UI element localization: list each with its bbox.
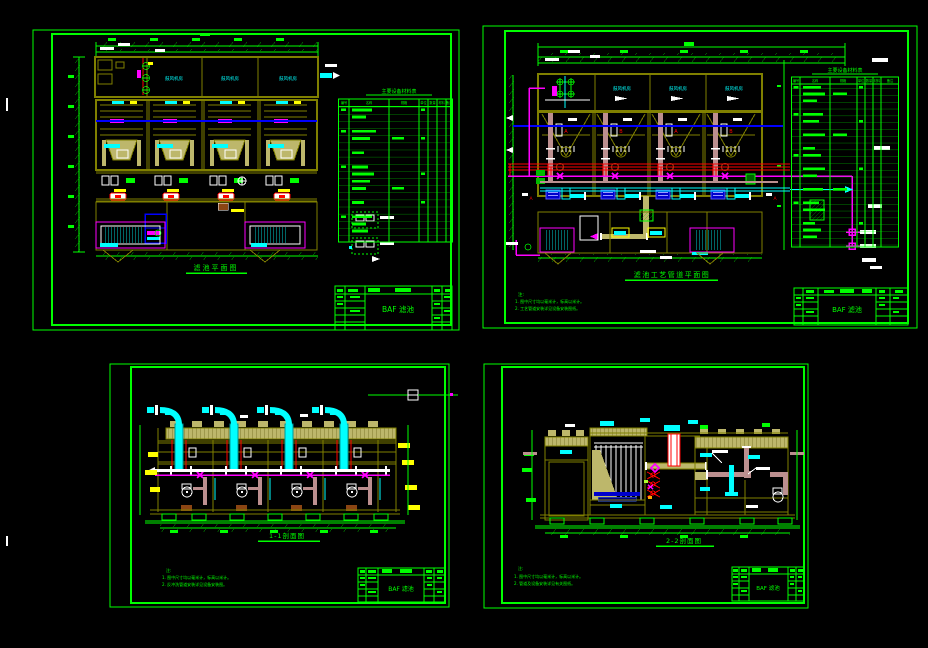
svg-text:名称: 名称 bbox=[366, 100, 373, 105]
svg-text:编号: 编号 bbox=[793, 78, 799, 83]
svg-text:规格: 规格 bbox=[840, 78, 847, 83]
svg-text:名称: 名称 bbox=[812, 78, 819, 83]
section-marker-right: A bbox=[773, 196, 777, 202]
section-structure bbox=[147, 405, 396, 512]
notes-header: 注: bbox=[166, 567, 171, 573]
sheet-pipe-plan: 鼓风机房 鼓风机房 鼓风机房 A B A B bbox=[483, 26, 917, 328]
right-structure bbox=[695, 429, 804, 515]
equipment-table: 主要设备材料表 编号 名称 规格 单位 数量 材料 备注 bbox=[339, 88, 453, 242]
room-label-2: 鼓风机房 bbox=[669, 85, 687, 92]
filter-cells bbox=[96, 100, 317, 200]
notes-header: 注: bbox=[518, 565, 523, 571]
table-title: 主要设备材料表 bbox=[381, 88, 416, 95]
title-block-title: BAF 滤池 bbox=[832, 305, 862, 314]
sheet-frame bbox=[110, 364, 449, 607]
title-block: BAF 滤池 bbox=[794, 288, 908, 325]
svg-text:规格: 规格 bbox=[401, 100, 408, 105]
notes: 注: 1. 图中尺寸均以毫米计，标高以米计。 2. 工艺管道安装详见设备安装图纸… bbox=[515, 291, 584, 311]
notes-header: 注: bbox=[518, 291, 524, 298]
sheet-section-2: 2-2剖面图 注: 1. 图中尺寸均以毫米计，标高以米计。 2. 管道及设备安装… bbox=[484, 364, 808, 608]
cell-letter-1: A bbox=[564, 129, 568, 135]
title-block-title: BAF 滤池 bbox=[756, 584, 780, 592]
room-label-1: 鼓风机房 bbox=[613, 85, 631, 92]
table-headers: 编号 名称 规格 单位 数量 材料 备注 bbox=[793, 78, 894, 83]
sheet-plan: 鼓风机房 鼓风机房 鼓风机房 bbox=[33, 30, 459, 330]
svg-text:材料: 材料 bbox=[874, 78, 881, 83]
drawing-caption: 1-1剖面图 bbox=[269, 531, 305, 540]
room-label-3: 鼓风机房 bbox=[725, 85, 743, 92]
equipment-table: 主要设备材料表 编号 名称 规格 单位 数量 材料 备注 bbox=[792, 67, 899, 247]
title-block: BAF 滤池 bbox=[358, 568, 445, 602]
svg-text:备注: 备注 bbox=[446, 100, 453, 105]
note-line-2: 2. 反冲洗管道安装详见设备安装图。 bbox=[162, 581, 227, 587]
svg-text:备注: 备注 bbox=[887, 78, 894, 83]
cell-letter-3: A bbox=[674, 129, 678, 135]
room-label-3: 鼓风机房 bbox=[279, 75, 297, 82]
svg-text:单位: 单位 bbox=[858, 78, 865, 83]
stairwell-right bbox=[245, 222, 305, 248]
note-line-2: 2. 工艺管道安装详见设备安装图纸。 bbox=[515, 305, 580, 311]
note-line-1: 1. 图中尺寸均以毫米计，标高以米计。 bbox=[515, 298, 584, 304]
title-block-title: BAF 滤池 bbox=[382, 304, 414, 314]
blower-room-strip: 鼓风机房 鼓风机房 鼓风机房 bbox=[95, 43, 340, 97]
svg-text:单位: 单位 bbox=[420, 100, 427, 105]
notes: 注: 1. 图中尺寸均以毫米计，标高以米计。 2. 反冲洗管道安装详见设备安装图… bbox=[162, 567, 231, 587]
cad-drawing: 鼓风机房 鼓风机房 鼓风机房 bbox=[0, 0, 928, 648]
cell-letter-4: B bbox=[729, 129, 733, 135]
svg-text:材料: 材料 bbox=[438, 100, 445, 105]
title-block-title: BAF 滤池 bbox=[388, 585, 414, 593]
cell-letter-2: B bbox=[619, 129, 623, 135]
room-label-1: 鼓风机房 bbox=[165, 75, 183, 82]
note-line-2: 2. 管道及设备安装详见有关图纸。 bbox=[514, 580, 575, 586]
sheet-section-1: 1-1剖面图 注: 1. 图中尺寸均以毫米计，标高以米计。 2. 反冲洗管道安装… bbox=[110, 364, 458, 607]
title-block: BAF 滤池 bbox=[732, 567, 804, 601]
notes: 注: 1. 图中尺寸均以毫米计，标高以米计。 2. 管道及设备安装详见有关图纸。 bbox=[514, 565, 583, 586]
stray-marks bbox=[6, 98, 8, 546]
section-marker-left: A bbox=[529, 196, 533, 202]
stairwell-left bbox=[540, 228, 574, 252]
table-title: 主要设备材料表 bbox=[827, 67, 862, 74]
drawing-caption: 2-2剖面图 bbox=[666, 536, 702, 545]
title-block: BAF 滤池 bbox=[335, 286, 452, 330]
note-line-1: 1. 图中尺寸均以毫米计，标高以米计。 bbox=[162, 574, 231, 580]
svg-text:编号: 编号 bbox=[341, 100, 347, 105]
room-label-2: 鼓风机房 bbox=[221, 75, 239, 82]
drawing-canvas: 鼓风机房 鼓风机房 鼓风机房 bbox=[0, 0, 928, 648]
filter-cells: A B A B bbox=[513, 112, 783, 200]
svg-text:数量: 数量 bbox=[866, 78, 873, 83]
note-line-1: 1. 图中尺寸均以毫米计，标高以米计。 bbox=[514, 573, 583, 579]
table-headers: 编号 名称 规格 单位 数量 材料 备注 bbox=[341, 100, 453, 105]
drawing-caption: 滤池平面图 bbox=[194, 263, 239, 272]
svg-text:数量: 数量 bbox=[429, 100, 436, 105]
stairwell-right bbox=[690, 228, 734, 255]
drawing-caption: 滤池工艺管道平面图 bbox=[634, 270, 711, 279]
